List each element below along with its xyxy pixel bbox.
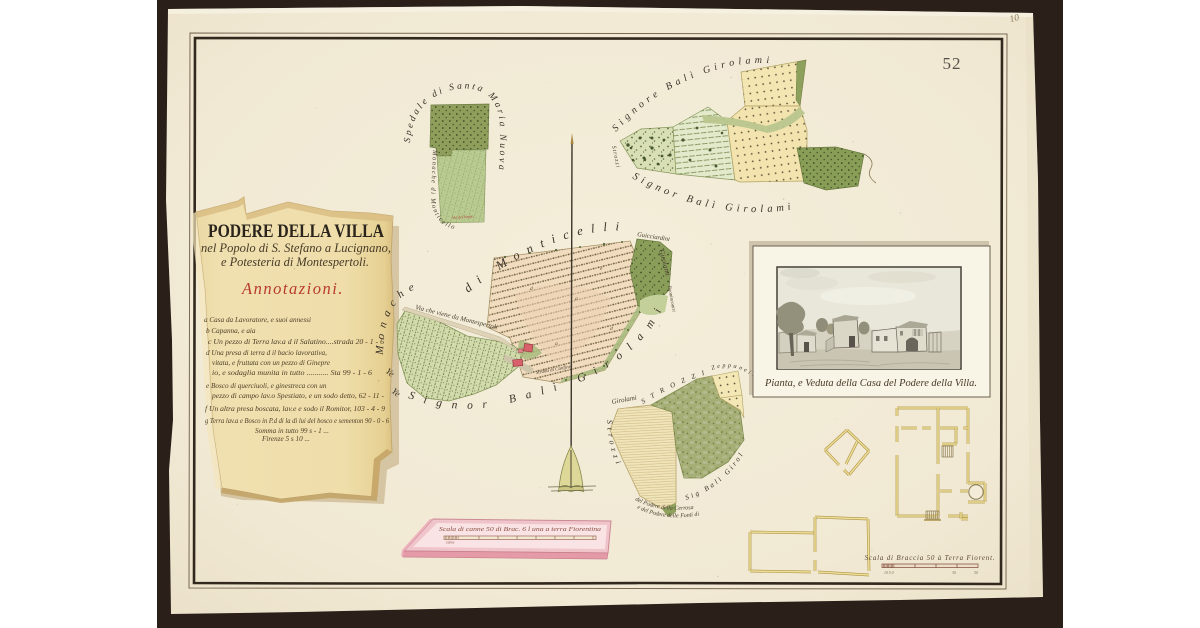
svg-text:d Una presa di terra d il baci: d Una presa di terra d il bacio lavorati… [206, 349, 327, 357]
svg-text:PODERE DELLA VILLA: PODERE DELLA VILLA [208, 222, 385, 242]
svg-text:50: 50 [974, 571, 978, 575]
svg-text:io, e sodaglia munita in tutto: io, e sodaglia munita in tutto .........… [212, 369, 372, 377]
svg-text:c Un pezzo di Terra lav.a d il: c Un pezzo di Terra lav.a d il Salatino.… [208, 338, 384, 346]
svg-text:a: a [555, 341, 558, 347]
svg-text:52: 52 [943, 54, 962, 73]
svg-text:pezzo di campo lav.o Spestiato: pezzo di campo lav.o Spestiato, e un sod… [211, 392, 385, 400]
svg-text:Somma in tutto 99 s - 1 ...: Somma in tutto 99 s - 1 ... [255, 427, 329, 435]
svg-text:a Casa da Lavoratore, e suoi a: a Casa da Lavoratore, e suoi annessi [204, 316, 311, 324]
svg-text:g Terra lav.a e Bosco in P.d d: g Terra lav.a e Bosco in P.d di la di lu… [205, 417, 389, 425]
svg-text:Pianta, e Veduta della Casa de: Pianta, e Veduta della Casa del Podere d… [764, 378, 977, 389]
svg-text:vitata, e fruttata con un pezz: vitata, e fruttata con un pezzo di Ginep… [212, 359, 331, 367]
svg-text:e Potesteria di Montespertoli.: e Potesteria di Montespertoli. [221, 255, 369, 269]
svg-text:b Capanna, e aia: b Capanna, e aia [206, 327, 256, 335]
svg-text:e Bosco di querciuoli, e gines: e Bosco di querciuoli, e ginestreca con … [206, 382, 327, 390]
svg-text:Firenze 5 s 10 ...: Firenze 5 s 10 ... [261, 435, 310, 443]
svg-text:f Un altra presa boscata, lav.: f Un altra presa boscata, lav.e e sodo i… [205, 405, 385, 413]
svg-text:Annotazioni.: Annotazioni. [241, 279, 344, 298]
svg-text:a: a [575, 296, 578, 302]
svg-text:nel Popolo di S. Stefano a Luc: nel Popolo di S. Stefano a Lucignano, [201, 241, 391, 255]
svg-text:d: d [610, 326, 613, 332]
svg-text:Scala di Braccia 50 à Terra Fi: Scala di Braccia 50 à Terra Fiorent. [865, 554, 996, 562]
svg-text:30: 30 [952, 571, 956, 575]
svg-text:canne: canne [446, 541, 455, 545]
svg-text:Scala di canne 50 di Brac. 6 l: Scala di canne 50 di Brac. 6 l una a ter… [439, 526, 601, 533]
svg-text:d: d [530, 286, 533, 292]
svg-text:10 5 0: 10 5 0 [884, 571, 894, 575]
